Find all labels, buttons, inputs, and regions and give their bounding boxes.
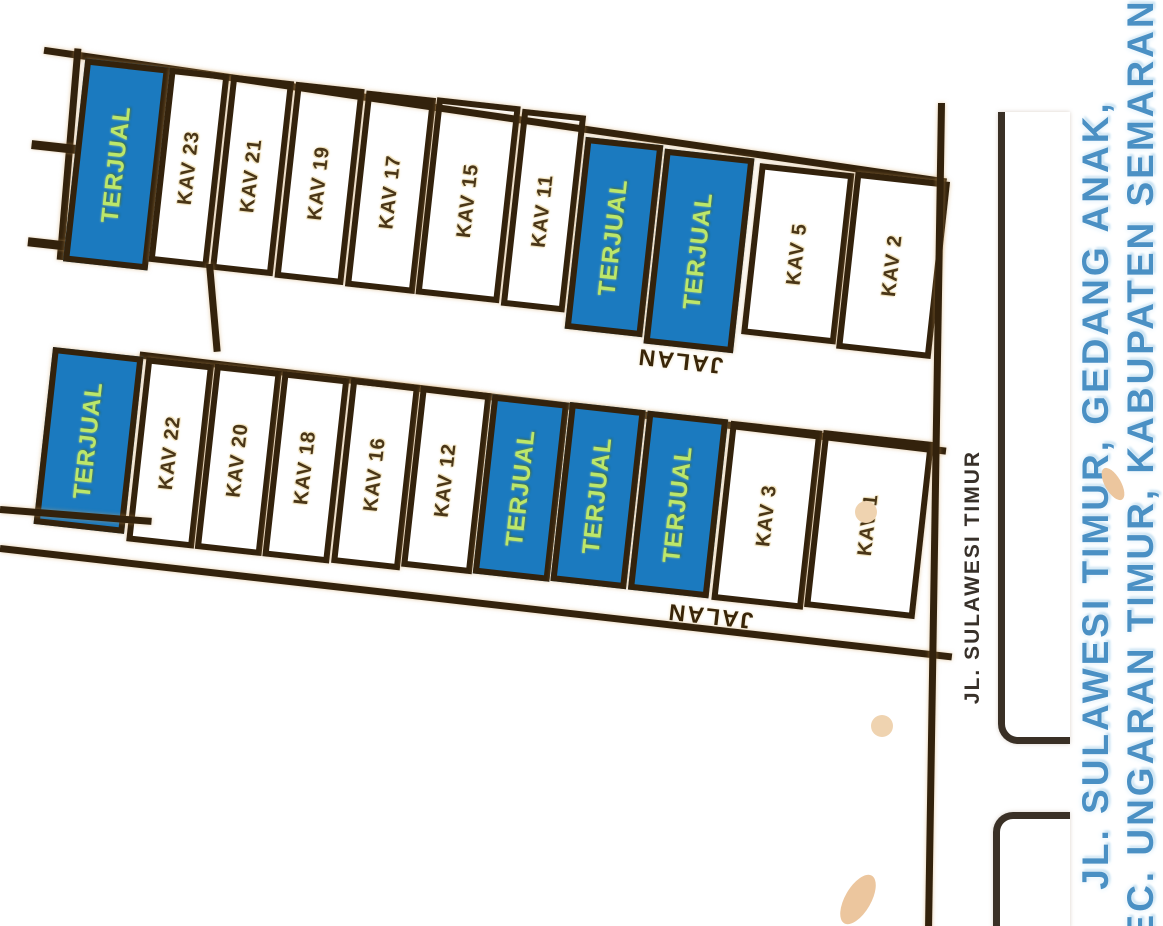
plot-label: TERJUAL: [679, 191, 720, 311]
side-road-label: JL. SULAWESI TIMUR: [961, 450, 985, 704]
plot-label: KAV 20: [223, 422, 254, 499]
smudge-dot: [871, 715, 893, 737]
plot-label: TERJUAL: [68, 380, 109, 500]
plot-label: TERJUAL: [658, 444, 699, 564]
plot-kav-1: KAV 1: [804, 430, 934, 619]
plot-label: KAV 23: [173, 130, 204, 207]
plot-kav-5: KAV 5: [741, 163, 854, 344]
plot-label: KAV 15: [453, 162, 484, 239]
plot-label: KAV 3: [752, 483, 782, 548]
plot-label: KAV 22: [155, 415, 186, 492]
map-title-line-2: KEC. UNGARAN TIMUR, KABUPATEN SEMARANG: [1120, 0, 1162, 926]
plot-label: KAV 17: [375, 154, 406, 231]
side-road-right-line-lower: [993, 812, 1070, 926]
smudge-dot: [855, 501, 877, 523]
plot-label: TERJUAL: [96, 104, 137, 224]
plot-kav-2: KAV 2: [836, 172, 950, 359]
plot-label: KAV 18: [290, 429, 321, 506]
plot-label: KAV 12: [431, 442, 462, 519]
plot-label: KAV 11: [528, 173, 559, 249]
side-road-right-line-upper: [998, 112, 1070, 744]
smudge-blob: [833, 869, 883, 926]
plot-label: KAV 5: [783, 221, 813, 286]
plot-terjual-g: TERJUAL: [628, 411, 728, 599]
plot-terjual-d: TERJUAL: [34, 347, 144, 534]
plot-label: KAV 19: [304, 145, 335, 222]
site-plan-map: TERJUAL KAV 23 KAV 21 KAV 19 KAV 17 KAV …: [0, 0, 1163, 926]
plot-label: KAV 21: [237, 137, 268, 214]
plot-label: TERJUAL: [501, 428, 542, 548]
plot-label: KAV 2: [878, 233, 908, 298]
plot-terjual-c: TERJUAL: [643, 149, 754, 354]
plot-label: TERJUAL: [578, 436, 619, 556]
plot-label: TERJUAL: [594, 177, 635, 297]
plot-label: KAV 16: [360, 436, 391, 513]
